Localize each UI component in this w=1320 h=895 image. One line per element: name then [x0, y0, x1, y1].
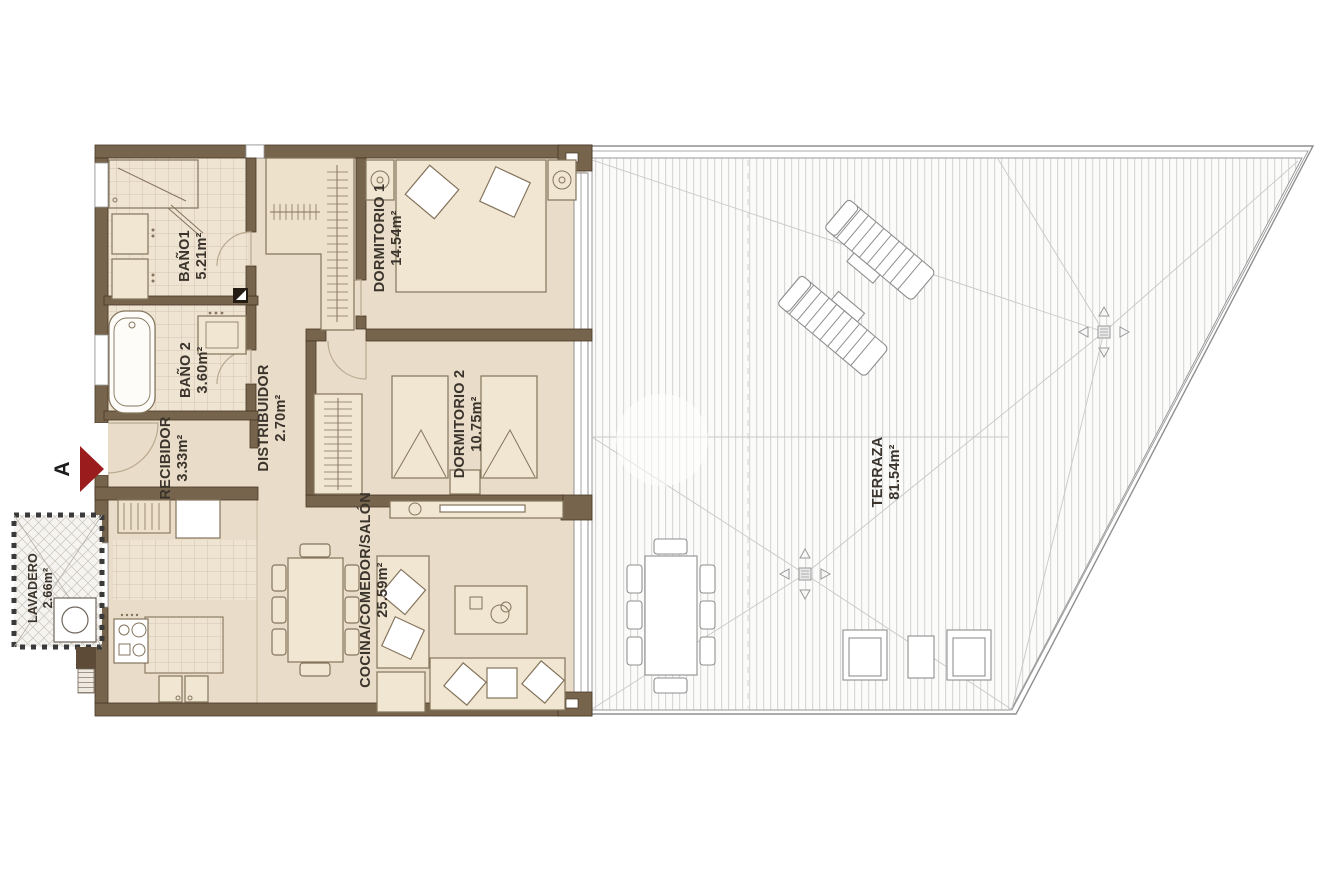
stove: [114, 619, 148, 663]
floor-plan: TERRAZA 81.54m²: [0, 0, 1320, 895]
room-label-bano1: BAÑO1 5.21m²: [175, 230, 210, 282]
floor-plan-page: TERRAZA 81.54m²: [0, 0, 1320, 895]
room-name: BAÑO 2: [176, 342, 194, 398]
room-area: 2.70m²: [273, 394, 289, 441]
terrace-window-wall: [574, 173, 588, 694]
room-label-terraza: TERRAZA 81.54m²: [870, 436, 903, 507]
terrace: TERRAZA 81.54m²: [592, 146, 1313, 714]
room-name: COCINA/COMEDOR/SALÓN: [356, 492, 374, 688]
tv: [440, 505, 525, 512]
bedroom2-furniture: [314, 376, 537, 494]
room-name: DORMITORIO 2: [452, 370, 468, 478]
room-name: TERRAZA: [870, 436, 886, 507]
washing-machine: [54, 598, 96, 642]
stool: [159, 676, 182, 702]
entry-closet: [118, 500, 170, 533]
pillar: [76, 647, 96, 669]
room-label-bano2: BAÑO 2 3.60m²: [176, 342, 211, 398]
room-area: 81.54m²: [887, 444, 903, 499]
side-table: [377, 672, 425, 712]
coffee-table: [455, 586, 527, 634]
single-bed-2: [481, 376, 537, 478]
bathtub: [109, 311, 155, 413]
room-area: 2.66m²: [41, 568, 55, 609]
cushion: [487, 668, 517, 698]
kitchen-island: [145, 617, 223, 673]
step: [78, 669, 94, 693]
single-bed-1: [392, 376, 448, 478]
room-name: LAVADERO: [26, 553, 40, 623]
room-area: 14.54m²: [389, 210, 405, 265]
room-area: 5.21m²: [194, 232, 210, 279]
room-area: 3.60m²: [195, 346, 211, 393]
room-name: BAÑO1: [175, 230, 193, 282]
sink-1: [112, 214, 148, 254]
kitchen-floor-tiles: [113, 540, 257, 600]
room-area: 25.59m²: [375, 562, 391, 617]
room-name: DORMITORIO 1: [372, 184, 388, 292]
room-area: 10.75m²: [469, 396, 485, 451]
dining-table: [288, 558, 343, 662]
fridge: [176, 500, 220, 538]
watermark: [616, 394, 708, 486]
room-name: RECIBIDOR: [158, 416, 174, 499]
outdoor-armchairs: [843, 630, 991, 680]
sink-2: [112, 259, 148, 299]
nightstand: [548, 160, 576, 200]
room-name: DISTRIBUIDOR: [256, 364, 272, 471]
section-letter: A: [51, 461, 74, 476]
room-area: 3.33m²: [175, 434, 191, 481]
